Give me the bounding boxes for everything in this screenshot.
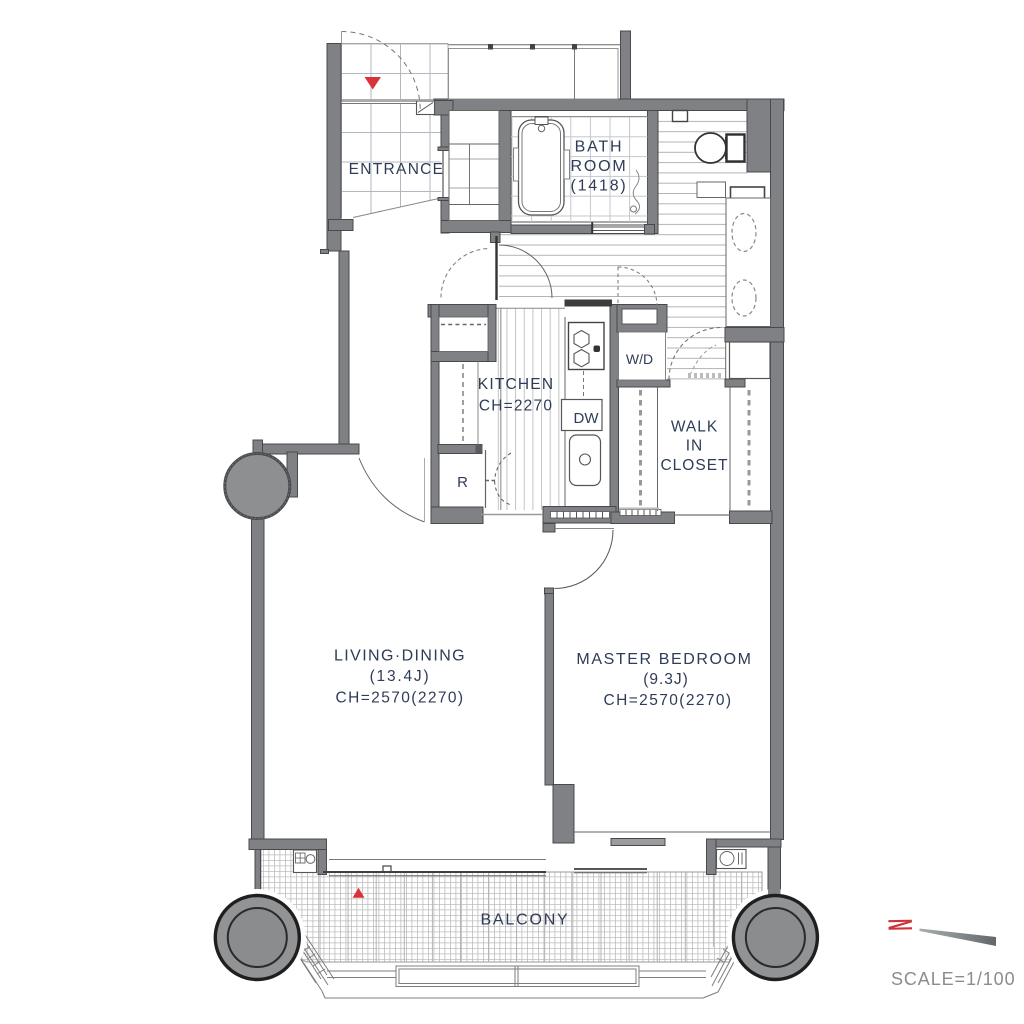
svg-text:CH=2570(2270): CH=2570(2270): [604, 692, 733, 709]
svg-text:CH=2570(2270): CH=2570(2270): [336, 690, 465, 707]
svg-text:N: N: [881, 919, 919, 932]
svg-text:SCALE=1/100: SCALE=1/100: [891, 969, 1015, 989]
svg-text:(9.3J): (9.3J): [643, 671, 689, 688]
svg-text:IN: IN: [686, 438, 704, 455]
svg-text:MASTER BEDROOM: MASTER BEDROOM: [576, 651, 752, 668]
svg-text:W/D: W/D: [626, 351, 653, 367]
svg-text:KITCHEN: KITCHEN: [478, 376, 554, 393]
svg-text:(13.4J): (13.4J): [370, 668, 431, 685]
svg-text:R: R: [457, 474, 468, 491]
svg-text:DW: DW: [574, 410, 600, 427]
svg-text:CH=2270: CH=2270: [479, 398, 553, 415]
svg-text:BATH: BATH: [575, 139, 624, 156]
svg-text:ROOM: ROOM: [571, 158, 628, 175]
svg-text:CLOSET: CLOSET: [660, 457, 728, 474]
svg-text:LIVING·DINING: LIVING·DINING: [334, 648, 466, 665]
svg-text:ENTRANCE: ENTRANCE: [349, 161, 445, 178]
svg-text:(1418): (1418): [570, 178, 627, 195]
svg-text:WALK: WALK: [671, 419, 718, 436]
svg-text:BALCONY: BALCONY: [480, 912, 569, 929]
